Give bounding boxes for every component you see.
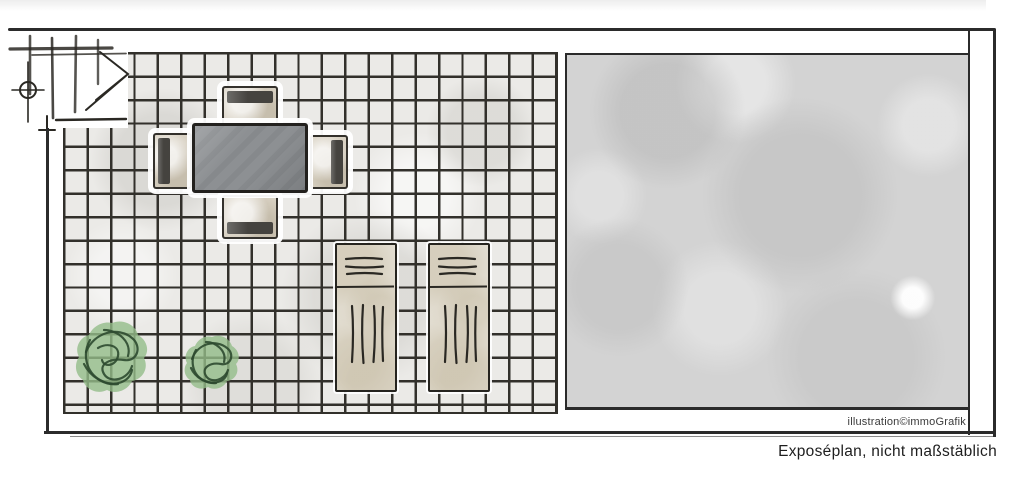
chair-backrest: [227, 91, 273, 103]
dining-table: [192, 123, 308, 193]
plan-disclaimer: Exposéplan, nicht maßstäblich: [778, 443, 997, 461]
sun-lounger: [335, 243, 397, 392]
sun-lounger: [428, 243, 490, 392]
chair-backrest: [158, 138, 170, 184]
lounger-slats-icon: [337, 245, 394, 389]
plant-icon: [74, 318, 150, 394]
terrace-left-border-line: [46, 128, 49, 434]
chair-backrest: [227, 222, 273, 234]
gravel-roof-area: [565, 53, 969, 410]
frame-top-shading: [0, 0, 986, 11]
chair-backrest: [331, 140, 343, 184]
illustration-credit: illustration©immoGrafik: [848, 416, 966, 428]
frame-bottom-secondary-line: [70, 436, 996, 437]
frame-bottom-line: [44, 431, 996, 434]
entrance-door-sketch: [0, 28, 140, 140]
exposeplan-illustration: illustration©immoGrafik Exposéplan, nich…: [0, 0, 1024, 490]
frame-right-outer-line: [993, 29, 996, 437]
chair-right: [310, 135, 348, 189]
frame-right-inner-line: [968, 29, 970, 435]
lounger-slats-icon: [430, 245, 487, 389]
plant-icon: [183, 333, 241, 391]
chair-left: [153, 133, 192, 189]
chair-bottom: [222, 195, 278, 239]
frame-top-line: [8, 28, 996, 31]
chair-top: [222, 86, 278, 126]
